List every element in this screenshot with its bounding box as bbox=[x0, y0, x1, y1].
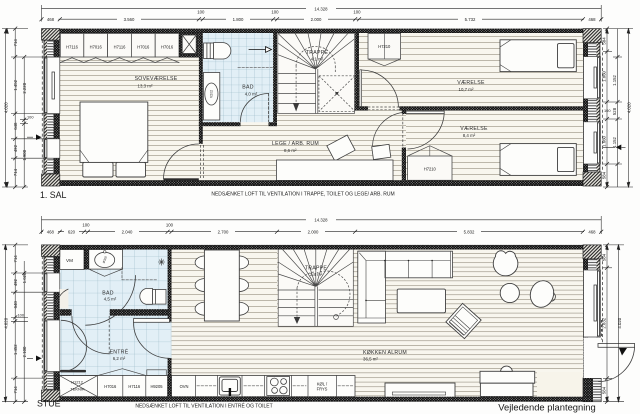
svg-text:468: 468 bbox=[588, 229, 596, 234]
svg-text:H7016: H7016 bbox=[137, 45, 150, 50]
svg-text:H7016: H7016 bbox=[161, 45, 174, 50]
svg-text:468: 468 bbox=[588, 17, 596, 22]
svg-text:BAD: BAD bbox=[242, 85, 253, 91]
svg-text:100: 100 bbox=[604, 108, 611, 113]
svg-text:2.000: 2.000 bbox=[308, 229, 319, 234]
svg-text:1.152: 1.152 bbox=[612, 137, 617, 148]
svg-text:TRAPPE: TRAPPE bbox=[305, 266, 328, 272]
svg-text:714: 714 bbox=[13, 168, 18, 176]
svg-text:5.732: 5.732 bbox=[465, 17, 476, 22]
svg-text:714: 714 bbox=[13, 39, 18, 47]
svg-text:1.800: 1.800 bbox=[233, 17, 244, 22]
svg-text:SOVEVÆRELSE: SOVEVÆRELSE bbox=[135, 76, 178, 82]
svg-text:1.452: 1.452 bbox=[13, 344, 18, 355]
svg-text:100: 100 bbox=[197, 10, 205, 15]
svg-text:4.020: 4.020 bbox=[617, 317, 622, 328]
svg-text:528: 528 bbox=[612, 107, 617, 115]
svg-text:8,6 m²: 8,6 m² bbox=[284, 148, 297, 153]
svg-text:492: 492 bbox=[13, 278, 18, 286]
svg-text:100: 100 bbox=[82, 222, 90, 227]
svg-text:1.860: 1.860 bbox=[601, 71, 606, 82]
svg-text:10,7 m²: 10,7 m² bbox=[459, 87, 474, 92]
svg-text:4.020: 4.020 bbox=[3, 317, 8, 328]
svg-text:H1212: H1212 bbox=[71, 380, 84, 385]
svg-text:14.328: 14.328 bbox=[314, 6, 328, 11]
svg-text:5.832: 5.832 bbox=[464, 229, 475, 234]
svg-text:Vejledende plantegning: Vejledende plantegning bbox=[498, 402, 596, 413]
svg-text:4,1 m²: 4,1 m² bbox=[311, 57, 324, 62]
svg-text:1.660: 1.660 bbox=[601, 136, 606, 147]
svg-text:468: 468 bbox=[47, 17, 55, 22]
svg-text:H7116: H7116 bbox=[128, 384, 140, 389]
svg-text:3.560: 3.560 bbox=[124, 17, 135, 22]
svg-text:VM: VM bbox=[66, 258, 73, 263]
svg-text:2.100: 2.100 bbox=[22, 346, 27, 357]
svg-text:584: 584 bbox=[601, 37, 606, 45]
svg-text:648: 648 bbox=[13, 301, 18, 309]
svg-text:714: 714 bbox=[13, 386, 18, 394]
svg-text:TEKNIK: TEKNIK bbox=[70, 387, 85, 392]
svg-text:100: 100 bbox=[166, 222, 174, 227]
svg-text:36,5 m²: 36,5 m² bbox=[363, 357, 378, 362]
svg-text:1.900: 1.900 bbox=[22, 149, 27, 160]
svg-text:1. SAL: 1. SAL bbox=[40, 190, 67, 200]
svg-text:4,0 m²: 4,0 m² bbox=[245, 92, 258, 97]
svg-text:H7116: H7116 bbox=[114, 45, 126, 50]
svg-text:584: 584 bbox=[601, 171, 606, 179]
svg-text:H7210: H7210 bbox=[378, 44, 391, 49]
svg-text:8,4 m²: 8,4 m² bbox=[463, 133, 476, 138]
svg-text:STUE: STUE bbox=[37, 399, 61, 409]
svg-text:H7116: H7116 bbox=[66, 45, 78, 50]
svg-text:TRAPPE: TRAPPE bbox=[306, 50, 329, 56]
svg-text:H7210: H7210 bbox=[424, 167, 437, 172]
svg-text:1.152: 1.152 bbox=[612, 75, 617, 86]
svg-text:NEDSÆNKET LOFT TIL VENTILATION: NEDSÆNKET LOFT TIL VENTILATION I TRAPPE,… bbox=[211, 192, 394, 198]
svg-text:14.328: 14.328 bbox=[314, 218, 328, 223]
svg-text:H7016: H7016 bbox=[104, 384, 117, 389]
svg-text:4.020: 4.020 bbox=[3, 102, 8, 113]
svg-text:4,5 m²: 4,5 m² bbox=[104, 297, 117, 302]
svg-text:3,8 m²: 3,8 m² bbox=[310, 272, 323, 277]
svg-text:VÆRELSE: VÆRELSE bbox=[460, 126, 488, 132]
svg-text:KØKKEN ALRUM: KØKKEN ALRUM bbox=[363, 350, 407, 356]
svg-text:100: 100 bbox=[353, 10, 361, 15]
svg-text:584: 584 bbox=[601, 253, 606, 261]
svg-text:OVN: OVN bbox=[180, 384, 189, 389]
svg-text:2.700: 2.700 bbox=[218, 229, 229, 234]
svg-text:4.020: 4.020 bbox=[626, 102, 631, 113]
svg-text:6,2 m²: 6,2 m² bbox=[113, 356, 126, 361]
svg-text:VÆRELSE: VÆRELSE bbox=[457, 80, 485, 86]
svg-text:1.620: 1.620 bbox=[22, 272, 27, 283]
svg-text:ENTRÉ: ENTRÉ bbox=[110, 349, 129, 356]
svg-text:714: 714 bbox=[13, 255, 18, 263]
svg-text:100: 100 bbox=[271, 10, 279, 15]
svg-text:2.040: 2.040 bbox=[122, 229, 133, 234]
svg-text:492: 492 bbox=[13, 144, 18, 152]
svg-text:620: 620 bbox=[68, 229, 76, 234]
svg-text:2.000: 2.000 bbox=[311, 17, 322, 22]
svg-text:1.452: 1.452 bbox=[13, 79, 18, 90]
svg-text:13,3 m²: 13,3 m² bbox=[138, 84, 153, 89]
svg-text:NEDSÆNKET LOFT TIL VENTILATION: NEDSÆNKET LOFT TIL VENTILATION I ENTRÉ O… bbox=[135, 403, 272, 410]
svg-text:100: 100 bbox=[18, 312, 25, 317]
svg-text:H9205: H9205 bbox=[150, 384, 163, 389]
svg-text:2.832: 2.832 bbox=[601, 317, 606, 328]
svg-text:100: 100 bbox=[27, 115, 34, 120]
svg-text:2.220: 2.220 bbox=[22, 82, 27, 93]
svg-text:468: 468 bbox=[47, 229, 55, 234]
svg-text:584: 584 bbox=[601, 386, 606, 394]
svg-text:LEGE / ARB. RUM: LEGE / ARB. RUM bbox=[272, 141, 319, 147]
svg-text:648: 648 bbox=[13, 122, 18, 130]
svg-text:V202: V202 bbox=[210, 90, 214, 98]
svg-text:H7016: H7016 bbox=[90, 45, 103, 50]
svg-text:FRYS: FRYS bbox=[317, 387, 328, 392]
